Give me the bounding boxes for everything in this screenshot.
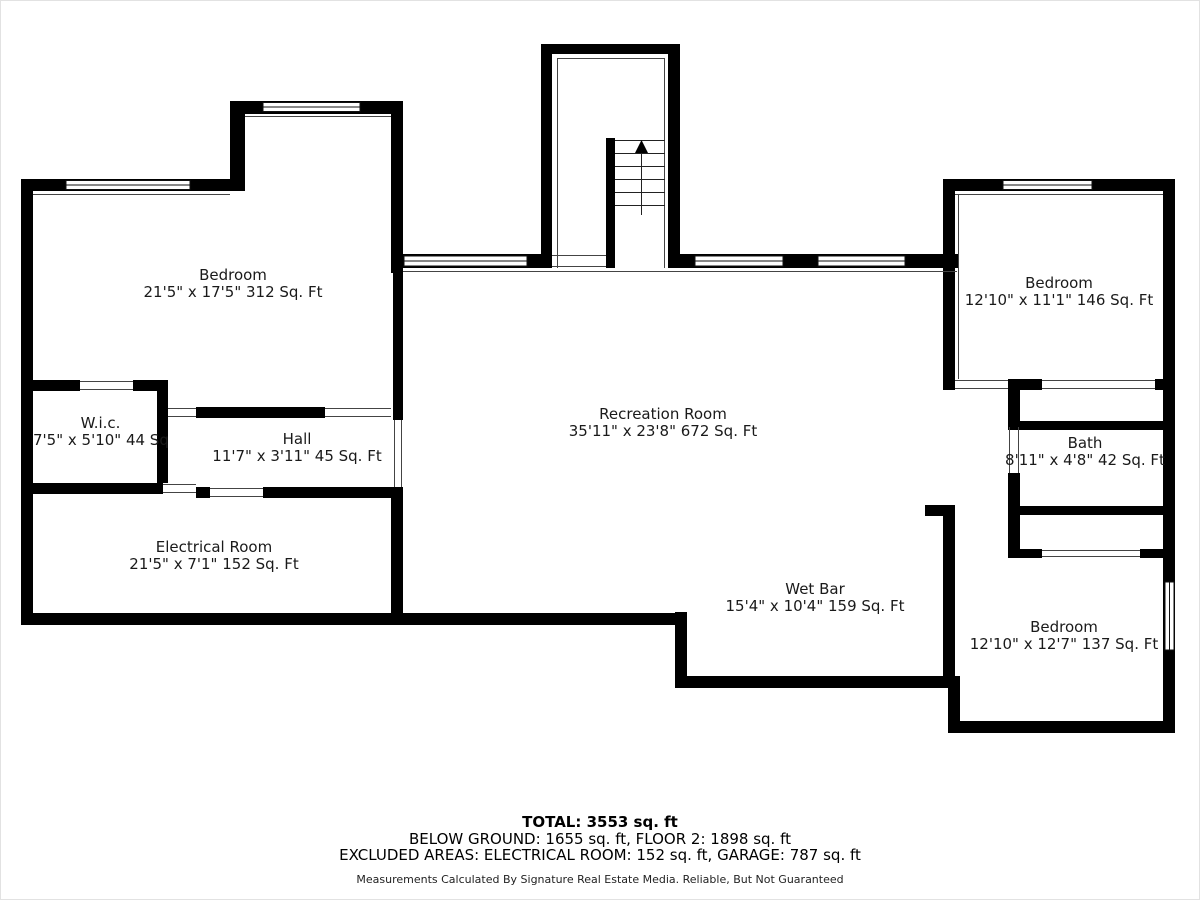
wall <box>1008 506 1175 515</box>
wall <box>263 487 403 498</box>
wall <box>1008 379 1020 427</box>
wall <box>943 379 955 390</box>
stairs-up-arrow-icon <box>635 140 648 153</box>
room-label-wet-bar: Wet Bar 15'4" x 10'4" 159 Sq. Ft <box>665 581 965 615</box>
wall <box>1140 549 1175 558</box>
room-dims: 8'11" x 4'8" 42 Sq. Ft <box>985 452 1185 469</box>
staircase <box>615 140 665 215</box>
wall <box>33 380 80 391</box>
wall <box>391 101 403 273</box>
wall <box>948 721 1175 733</box>
room-dims: 12'10" x 12'7" 137 Sq. Ft <box>933 636 1195 653</box>
room-name: Recreation Room <box>513 406 813 423</box>
room-name: Hall <box>177 431 417 448</box>
room-label-bath: Bath 8'11" x 4'8" 42 Sq. Ft <box>985 435 1185 469</box>
disclaimer-text: Measurements Calculated By Signature Rea… <box>0 873 1200 886</box>
window <box>695 256 783 266</box>
room-dims: 15'4" x 10'4" 159 Sq. Ft <box>665 598 965 615</box>
room-dims: 21'5" x 7'1" 152 Sq. Ft <box>84 556 344 573</box>
room-label-bedroom-top-right: Bedroom 12'10" x 11'1" 146 Sq. Ft <box>928 275 1190 309</box>
wall <box>675 676 955 688</box>
wall <box>668 44 680 268</box>
room-name: Bedroom <box>103 267 363 284</box>
wall <box>1008 421 1175 430</box>
wall <box>196 487 210 498</box>
room-name: Wet Bar <box>665 581 965 598</box>
wall <box>133 380 168 391</box>
area-breakdown-text: BELOW GROUND: 1655 sq. ft, FLOOR 2: 1898… <box>0 831 1200 847</box>
room-label-electrical-room: Electrical Room 21'5" x 7'1" 152 Sq. Ft <box>84 539 344 573</box>
wall <box>21 483 163 494</box>
room-label-recreation-room: Recreation Room 35'11" x 23'8" 672 Sq. F… <box>513 406 813 440</box>
wall <box>1155 379 1175 390</box>
total-area-text: TOTAL: 3553 sq. ft <box>0 814 1200 831</box>
room-dims: 11'7" x 3'11" 45 Sq. Ft <box>177 448 417 465</box>
room-label-hall: Hall 11'7" x 3'11" 45 Sq. Ft <box>177 431 417 465</box>
room-name: Electrical Room <box>84 539 344 556</box>
room-label-bedroom-bottom-right: Bedroom 12'10" x 12'7" 137 Sq. Ft <box>933 619 1195 653</box>
excluded-areas-text: EXCLUDED AREAS: ELECTRICAL ROOM: 152 sq.… <box>0 847 1200 863</box>
window <box>66 181 190 190</box>
window <box>1003 181 1092 190</box>
wall <box>541 44 552 268</box>
room-dims: 35'11" x 23'8" 672 Sq. Ft <box>513 423 813 440</box>
room-dims: 12'10" x 11'1" 146 Sq. Ft <box>928 292 1190 309</box>
room-dims: 21'5" x 17'5" 312 Sq. Ft <box>103 284 363 301</box>
summary-footer: TOTAL: 3553 sq. ft BELOW GROUND: 1655 sq… <box>0 814 1200 886</box>
room-label-walk-in-closet: W.i.c. 7'5" x 5'10" 44 Sq. Ft <box>33 415 168 449</box>
window <box>404 256 527 266</box>
room-name: Bedroom <box>928 275 1190 292</box>
room-name: W.i.c. <box>33 415 168 432</box>
wall <box>541 44 680 54</box>
room-dims: 7'5" x 5'10" 44 Sq. Ft <box>33 432 168 449</box>
wall <box>1008 549 1042 558</box>
wall <box>1008 473 1020 558</box>
room-label-bedroom-top-left: Bedroom 21'5" x 17'5" 312 Sq. Ft <box>103 267 363 301</box>
window <box>263 103 360 112</box>
wall <box>21 613 687 625</box>
wall <box>393 273 403 420</box>
wall <box>21 179 33 625</box>
window <box>818 256 905 266</box>
room-name: Bath <box>985 435 1185 452</box>
stair-wall <box>606 138 615 268</box>
wall <box>391 487 403 613</box>
wall <box>230 101 245 191</box>
room-name: Bedroom <box>933 619 1195 636</box>
wall <box>196 407 325 418</box>
